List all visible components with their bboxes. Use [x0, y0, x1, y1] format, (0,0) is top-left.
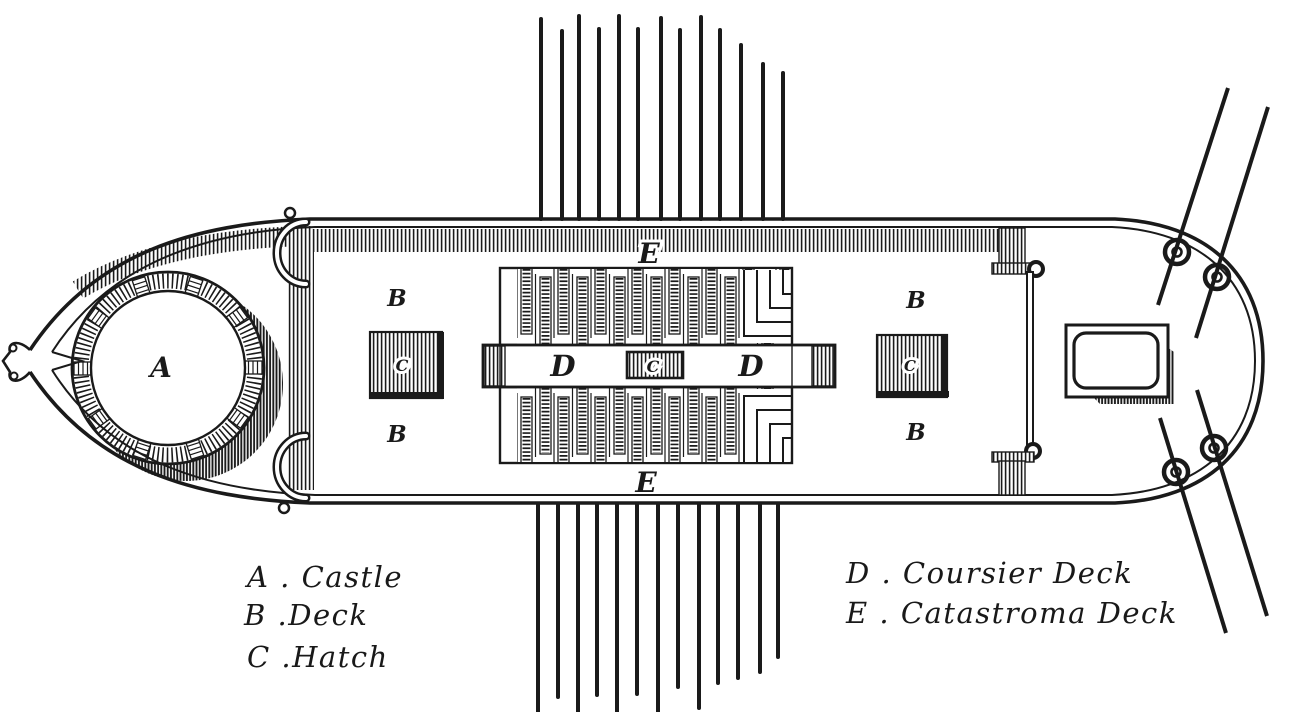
port-oar-bank [541, 16, 783, 219]
legend-hatch: C .Hatch [247, 640, 389, 674]
label-castle-a: A [147, 351, 172, 384]
label-deck-b-top-left: B [386, 285, 406, 312]
label-hatch-c-right: C [904, 357, 916, 375]
label-hatch-c-left: C [396, 356, 409, 375]
bow-thole-ring-bottom [279, 503, 289, 513]
label-hatch-c-center: C [647, 357, 660, 376]
aft-bulkhead [992, 228, 1043, 495]
label-deck-b-top-right: B [905, 287, 925, 314]
legend-deck: B .Deck [244, 598, 368, 632]
coursier-end-cap-right [812, 346, 833, 386]
label-catastroma-e-top: E [637, 237, 660, 270]
label-deck-b-bottom-right: B [905, 419, 925, 446]
galley-deck-plan-engraving: A B B B B C C C D D E E A . Castle B .De… [0, 0, 1300, 712]
steering-oars [1158, 88, 1268, 633]
label-deck-b-bottom-left: B [386, 421, 406, 448]
label-coursier-d-left: D [549, 349, 575, 383]
stern-companionway [1066, 325, 1174, 404]
legend-coursier-deck: D . Coursier Deck [846, 556, 1133, 590]
legend-castle: A . Castle [247, 560, 403, 594]
legend-catastroma-deck: E . Catastroma Deck [846, 596, 1178, 630]
label-coursier-d-right: D [737, 349, 763, 383]
bow-thole-ring-top [285, 208, 295, 218]
bow-ornament [3, 343, 30, 381]
castle [72, 272, 283, 481]
coursier-end-cap-left [484, 346, 505, 386]
starboard-oar-bank [538, 504, 778, 712]
label-catastroma-e-bottom: E [634, 466, 657, 499]
